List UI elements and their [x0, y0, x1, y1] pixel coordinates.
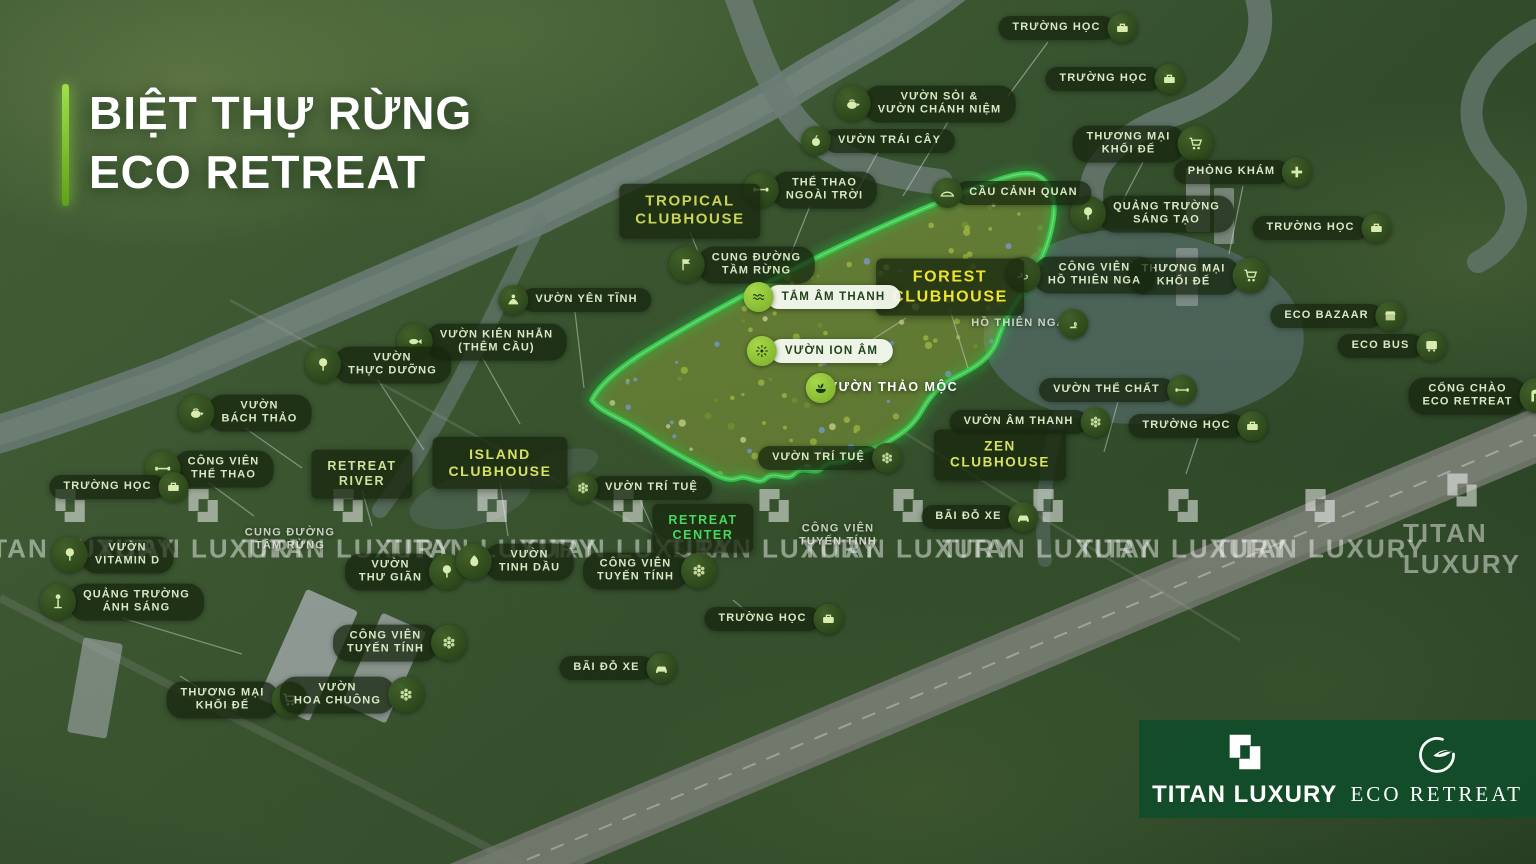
truong-hoc-school-icon — [814, 604, 844, 634]
map-label-text: VƯỜN THỂ CHẤT — [1053, 383, 1160, 396]
map-label-vuon-yen-tinh: VƯỜN YÊN TĨNH — [498, 285, 651, 315]
eco-retreat-wordmark: ECO RETREAT — [1350, 782, 1522, 807]
map-label-text: TUYẾN TÍNH — [597, 571, 674, 584]
map-label-text: CÔNG VIÊN — [600, 558, 672, 571]
map-label-truong-hoc-2: TRƯỜNG HỌC — [1045, 64, 1184, 94]
map-label-text: QUẢNG TRƯỜNG — [83, 589, 190, 602]
map-label-text: CÔNG VIÊN — [188, 456, 260, 469]
titan-luxury-brand: TITAN LUXURY — [1152, 729, 1337, 809]
map-label-text: TRƯỜNG HỌC — [718, 612, 806, 625]
bai-do-xe-car-icon — [1009, 502, 1039, 532]
map-label-text: TRƯỜNG HỌC — [63, 480, 151, 493]
map-label-text: TẦM RỪNG — [722, 265, 791, 278]
bai-do-xe-car-icon — [647, 653, 677, 683]
cung-duong-tam-rung-trail-icon — [669, 247, 705, 283]
map-label-vuon-tri-tue-1: VƯỜN TRÍ TUỆ — [758, 443, 902, 473]
map-label-text: VƯỜN TRÍ TUỆ — [605, 481, 698, 494]
phong-kham-plus-icon — [1282, 157, 1312, 187]
map-label-text: VƯỜN CHÁNH NIỆM — [878, 104, 1002, 117]
map-label-cong-vien-tuyen-tinh-1: CÔNG VIÊNTUYẾN TÍNH — [799, 523, 877, 550]
map-label-text: QUẢNG TRƯỜNG — [1113, 201, 1220, 214]
map-label-text: NGOÀI TRỜI — [786, 190, 863, 203]
map-label-text: KHỐI ĐẾ — [1157, 276, 1211, 289]
poster-title: BIỆT THỰ RỪNG ECO RETREAT — [62, 84, 472, 206]
eco-bus-bus-icon — [1416, 331, 1446, 361]
map-label-text: ÁNH SÁNG — [103, 602, 170, 615]
thuong-mai-khoi-de-cart-icon — [1232, 258, 1268, 294]
map-label-vuon-the-chat: VƯỜN THỂ CHẤT — [1039, 375, 1197, 405]
map-label-vuon-vitamin-d: VƯỜNVITAMIN D — [52, 537, 174, 574]
map-label-vuon-trai-cay: VƯỜN TRÁI CÂY — [801, 126, 955, 156]
map-label-text: VƯỜN TRÍ TUỆ — [772, 451, 865, 464]
map-label-text: HOA CHUÔNG — [294, 695, 381, 708]
map-label-text: FOREST — [913, 267, 988, 287]
map-label-text: RETREAT — [327, 459, 396, 474]
vuon-am-thanh-flower-icon — [1080, 407, 1110, 437]
map-label-text: (THÊM CẦU) — [458, 342, 534, 355]
map-label-text: CÔNG VIÊN — [350, 630, 422, 643]
map-label-truong-hoc-5: TRƯỜNG HỌC — [49, 472, 188, 502]
map-label-text: CLUBHOUSE — [448, 463, 551, 480]
eco-bazaar-store-icon — [1376, 301, 1406, 331]
map-label-text: TUYẾN TÍNH — [347, 643, 424, 656]
vuon-hoa-chuong-flower-icon — [388, 677, 424, 713]
map-label-vuon-thu-gian: VƯỜNTHƯ GIÃN — [345, 554, 465, 591]
map-label-text: PHÒNG KHÁM — [1188, 165, 1275, 178]
map-label-text: SÁNG TẠO — [1133, 214, 1200, 227]
map-label-text: TẮM ÂM THANH — [782, 290, 886, 304]
map-label-vuon-tri-tue-2: VƯỜN TRÍ TUỆ — [568, 473, 712, 503]
map-label-text: BÃI ĐỖ XE — [573, 661, 639, 674]
map-label-text: RIVER — [339, 474, 385, 489]
map-label-text: TROPICAL — [645, 193, 734, 211]
map-label-text: VƯỜN SỎI & — [901, 91, 979, 104]
titan-luxury-logo — [1222, 729, 1268, 775]
map-label-text: THƯƠNG MẠI — [1087, 131, 1171, 144]
map-label-vuon-bach-thao: VƯỜNBÁCH THẢO — [179, 395, 312, 432]
map-label-cong-vien-tuyen-tinh-3: CÔNG VIÊNTUYẾN TÍNH — [333, 625, 467, 662]
eco-retreat-logo — [1415, 732, 1459, 776]
map-label-text: VƯỜN — [318, 682, 356, 695]
truong-hoc-school-icon — [1362, 213, 1392, 243]
map-label-text: VƯỜN — [510, 549, 548, 562]
map-label-text: BÁCH THẢO — [222, 413, 298, 426]
cong-vien-tuyen-tinh-flower-icon — [431, 625, 467, 661]
map-label-text: VƯỜN ÂM THANH — [964, 415, 1074, 428]
vuon-trai-cay-apple-icon — [801, 126, 831, 156]
map-label-zen-clubhouse: ZENCLUBHOUSE — [934, 430, 1066, 481]
map-label-text: ECO BAZAAR — [1284, 309, 1368, 322]
map-label-text: HỒ THIÊN NGA — [1048, 275, 1141, 288]
map-label-cau-canh-quan: CẦU CẢNH QUAN — [932, 178, 1091, 208]
map-label-text: VƯỜN KIÊN NHẪN — [440, 329, 553, 342]
map-label-text: TRƯỜNG HỌC — [1012, 21, 1100, 34]
map-label-text: KHỐI ĐẾ — [196, 700, 250, 713]
map-label-cung-duong-tam-rung-2: CUNG ĐƯỜNGTẦM RỪNG — [245, 527, 335, 554]
map-label-truong-hoc-3: TRƯỜNG HỌC — [1252, 213, 1391, 243]
map-label-text: VƯỜN THẢO MỘC — [829, 380, 958, 395]
vuon-thao-moc-herb-icon — [806, 373, 836, 403]
map-label-retreat-center: RETREATCENTER — [652, 504, 753, 553]
titan-luxury-wordmark: TITAN LUXURY — [1152, 781, 1337, 809]
map-label-cong-chao-eco-retreat: CỔNG CHÀOECO RETREAT — [1408, 378, 1536, 415]
map-label-vuon-thao-moc: VƯỜN THẢO MỘC — [806, 373, 958, 403]
truong-hoc-school-icon — [1238, 411, 1268, 441]
map-label-text: CUNG ĐƯỜNG — [245, 527, 335, 540]
map-label-text: TINH DẦU — [499, 562, 560, 575]
map-label-bai-do-xe-2: BÃI ĐỖ XE — [559, 653, 676, 683]
map-label-eco-bazaar: ECO BAZAAR — [1270, 301, 1405, 331]
map-label-truong-hoc-6: TRƯỜNG HỌC — [704, 604, 843, 634]
map-label-text: TUYẾN TÍNH — [799, 536, 877, 549]
truong-hoc-school-icon — [159, 472, 189, 502]
map-label-text: ECO BUS — [1352, 339, 1410, 352]
map-label-text: THƯƠNG MẠI — [181, 687, 265, 700]
map-label-tropical-clubhouse: TROPICALCLUBHOUSE — [619, 184, 760, 239]
map-label-ho-thien-nga: HỒ THIÊN NGA — [971, 309, 1088, 339]
map-label-cong-vien-tuyen-tinh-2: CÔNG VIÊNTUYẾN TÍNH — [583, 553, 717, 590]
map-label-text: TẦM RỪNG — [255, 540, 325, 553]
map-label-text: THỂ THAO — [792, 177, 857, 190]
cong-vien-tuyen-tinh-flower-icon — [681, 553, 717, 589]
map-label-text: RETREAT — [668, 513, 737, 528]
vuon-yen-tinh-meditate-icon — [498, 285, 528, 315]
map-label-cong-vien-ho-thien-nga: CÔNG VIÊNHỒ THIÊN NGA — [1005, 257, 1155, 294]
map-label-text: KHỐI ĐẾ — [1102, 144, 1156, 157]
map-label-text: CÔNG VIÊN — [802, 523, 875, 536]
title-line1: BIỆT THỰ RỪNG — [89, 84, 472, 143]
map-label-truong-hoc-4: TRƯỜNG HỌC — [1128, 411, 1267, 441]
masterplan-poster: BIỆT THỰ RỪNG ECO RETREAT TRƯỜNG HỌCTRƯỜ… — [0, 0, 1536, 864]
map-label-retreat-river: RETREATRIVER — [311, 450, 412, 499]
map-label-text: TRƯỜNG HỌC — [1266, 221, 1354, 234]
map-label-the-thao-ngoai-troi: THỂ THAONGOÀI TRỜI — [743, 172, 877, 209]
map-label-text: THỂ THAO — [191, 469, 256, 482]
brand-footer: TITAN LUXURY ECO RETREAT — [1139, 720, 1536, 818]
map-label-text: CENTER — [673, 528, 734, 543]
map-label-eco-bus: ECO BUS — [1338, 331, 1447, 361]
eco-retreat-brand: ECO RETREAT — [1350, 732, 1522, 807]
map-label-text: VƯỜN ION ÂM — [785, 344, 878, 358]
map-label-vuon-thuc-duong: VƯỜNTHỰC DƯỠNG — [305, 347, 451, 384]
map-label-text: CUNG ĐƯỜNG — [712, 252, 801, 265]
map-label-text: VƯỜN — [371, 559, 409, 572]
truong-hoc-school-icon — [1155, 64, 1185, 94]
truong-hoc-school-icon — [1108, 13, 1138, 43]
map-label-text: TRƯỜNG HỌC — [1142, 419, 1230, 432]
map-label-vuon-ion-am: VƯỜN ION ÂM — [747, 336, 893, 366]
map-label-text: THƯ GIÃN — [359, 572, 422, 585]
map-label-text: VƯỜN — [108, 542, 146, 555]
map-label-text: VƯỜN YÊN TĨNH — [535, 293, 637, 306]
map-label-text: CỔNG CHÀO — [1428, 383, 1506, 396]
map-label-vuon-hoa-chuong: VƯỜNHOA CHUÔNG — [280, 677, 424, 714]
map-label-vuon-soi-chanh-niem: VƯỜN SỎI &VƯỜN CHÁNH NIỆM — [835, 86, 1016, 123]
map-label-text: VƯỜN TRÁI CÂY — [838, 134, 941, 147]
map-label-text: ZEN — [984, 439, 1016, 455]
title-accent-bar — [62, 84, 69, 206]
vuon-the-chat-dumbbell-icon — [1167, 375, 1197, 405]
title-line2: ECO RETREAT — [89, 143, 472, 202]
map-label-text: BÃI ĐỖ XE — [935, 510, 1001, 523]
vuon-tri-tue-flower-icon — [568, 473, 598, 503]
map-label-text: VƯỜN — [240, 400, 278, 413]
vuon-tinh-dau-leaf-icon — [456, 544, 492, 580]
vuon-tri-tue-flower-icon — [872, 443, 902, 473]
map-label-cung-duong-tam-rung-1: CUNG ĐƯỜNGTẦM RỪNG — [669, 247, 815, 284]
map-label-text: CLUBHOUSE — [635, 211, 744, 229]
map-label-text: CLUBHOUSE — [892, 287, 1008, 307]
map-label-text: THỰC DƯỠNG — [348, 365, 437, 378]
map-label-vuon-tinh-dau: VƯỜNTINH DẦU — [456, 544, 574, 581]
map-label-tam-am-thanh: TẮM ÂM THANH — [744, 282, 901, 312]
map-label-text: ISLAND — [469, 446, 531, 463]
vuon-soi-chanh-niem-teapot-icon — [835, 86, 871, 122]
map-label-quang-truong-anh-sang: QUẢNG TRƯỜNGÁNH SÁNG — [40, 584, 204, 621]
tam-am-thanh-wave-icon — [744, 282, 774, 312]
map-label-text: CLUBHOUSE — [950, 455, 1050, 471]
quang-truong-anh-sang-lamp-icon — [40, 584, 76, 620]
map-label-text: CÔNG VIÊN — [1059, 262, 1131, 275]
vuon-ion-am-ion-icon — [747, 336, 777, 366]
map-label-island-clubhouse: ISLANDCLUBHOUSE — [432, 437, 567, 489]
map-label-quang-truong-sang-tao: QUẢNG TRƯỜNGSÁNG TẠO — [1070, 196, 1234, 233]
vuon-vitamin-d-tree-icon — [52, 537, 88, 573]
map-label-bai-do-xe-1: BÃI ĐỖ XE — [921, 502, 1038, 532]
cau-canh-quan-bridge-icon — [932, 178, 962, 208]
map-label-text: HỒ THIÊN NGA — [971, 317, 1065, 330]
ho-thien-nga-swan-icon — [1059, 309, 1089, 339]
map-label-text: VƯỜN — [373, 352, 411, 365]
map-label-text: CẦU CẢNH QUAN — [969, 186, 1077, 199]
map-label-text: TRƯỜNG HỌC — [1059, 72, 1147, 85]
vuon-bach-thao-teapot-icon — [179, 395, 215, 431]
map-label-text: ECO RETREAT — [1422, 396, 1512, 409]
map-label-truong-hoc-1: TRƯỜNG HỌC — [998, 13, 1137, 43]
map-label-phong-kham: PHÒNG KHÁM — [1174, 157, 1312, 187]
vuon-thuc-duong-tree-icon — [305, 347, 341, 383]
map-label-text: VITAMIN D — [95, 555, 160, 568]
